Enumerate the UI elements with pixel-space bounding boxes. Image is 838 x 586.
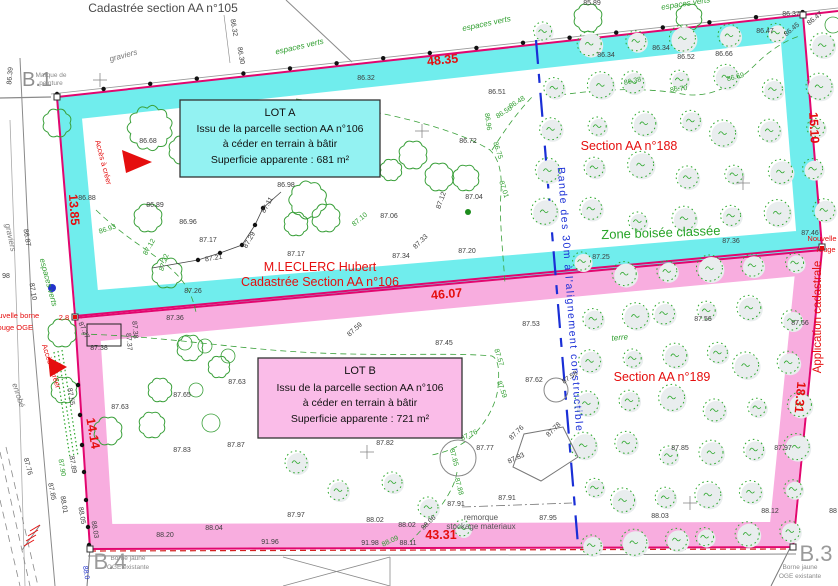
tree-shadow: [613, 490, 637, 514]
elevation-label: 87.63: [228, 379, 246, 386]
access-arrow-icon-1: [122, 150, 152, 173]
shrub-icon: [189, 383, 203, 397]
survey-dot: [253, 223, 257, 227]
elevation-label: 87.89: [68, 455, 78, 474]
boundary-corner-marker: [800, 12, 806, 18]
elevation-label: 86.32: [229, 18, 239, 37]
tree-shadow: [585, 311, 605, 331]
map-label: stockage materiaux: [446, 522, 515, 531]
map-label: Section AA n°188: [581, 139, 678, 153]
survey-dot: [101, 87, 105, 91]
elevation-label: 88.03: [651, 513, 669, 520]
hatch-tick-4: [30, 525, 40, 531]
survey-dot: [196, 258, 200, 262]
tree-shadow: [779, 353, 801, 375]
elevation-label: 87.36: [166, 315, 184, 322]
tree-shadow: [812, 35, 836, 59]
deciduous-tree-icon: [453, 165, 479, 191]
elevation-label: 87.91: [498, 495, 516, 502]
elevation-label: 87.55: [66, 387, 76, 406]
elevation-label: 87.37: [124, 333, 133, 351]
new-red-boundary-marker: [73, 315, 77, 319]
tree-shadow: [737, 524, 761, 548]
contour-elevation-label: 87.12: [142, 238, 157, 257]
elevation-label: 87.33: [412, 233, 429, 250]
elevation-label: 87.17: [199, 237, 217, 244]
elevation-label: 87.12: [435, 191, 448, 210]
elevation-label: 88: [829, 508, 837, 515]
map-label: Cadastrée section AA n°105: [88, 1, 238, 15]
red-hatch-mark: [22, 525, 40, 550]
elevation-label: 87.21: [204, 254, 223, 264]
contour-elevation-label: 86.70: [670, 85, 688, 94]
elevation-label: 85.89: [583, 0, 601, 7]
deciduous-tree-icon: [48, 319, 76, 347]
tree-shadow: [723, 207, 743, 227]
contour-elevation-label: 87.22: [159, 253, 171, 272]
contour-elevation-label: 87.90: [57, 458, 67, 477]
deciduous-tree-icon: [148, 378, 171, 401]
tree-shadow: [621, 392, 641, 412]
tree-shadow: [586, 159, 606, 179]
boundary-corner-marker: [87, 546, 93, 552]
elevation-label: 86.47: [806, 10, 824, 27]
tree-shadow: [815, 201, 837, 223]
elevation-label: 86.52: [677, 54, 695, 61]
lot-a-line-1: Issu de la parcelle section AA n°106: [196, 123, 363, 135]
lot-b-title: LOT B: [344, 365, 376, 377]
contour-elevation-label: 86.56: [495, 105, 514, 120]
tree-shadow: [705, 401, 727, 423]
tree-shadow: [287, 453, 309, 475]
elevation-label: 87.83: [507, 452, 526, 466]
map-label: 2.8: [59, 313, 69, 322]
elevation-label: 86.34: [597, 52, 615, 59]
tree-shadow: [741, 483, 763, 505]
shrub-icon: [202, 414, 220, 432]
tree-shadow: [739, 297, 763, 321]
elevation-label: 87.97: [774, 445, 792, 452]
elevation-label: 86.30: [236, 46, 246, 65]
elevation-label: 86.66: [715, 51, 733, 58]
elevation-label: 87.56: [694, 316, 712, 323]
map-label: Bande des 30m à l'alignement constructib…: [555, 167, 586, 433]
cadastral-survey-plan: Cadastrée section AA n°105B.1Marque depe…: [0, 0, 838, 586]
survey-dot: [614, 30, 618, 34]
elevation-label: 91.98: [361, 540, 379, 547]
contour-elevation-label: 86.75: [491, 141, 503, 160]
elevation-label: 87.36: [722, 238, 740, 245]
tree-shadow: [667, 530, 689, 552]
elevation-label: 87.65: [173, 392, 191, 399]
shrub-icon: [178, 336, 192, 350]
map-label: Borne jaune: [110, 555, 145, 562]
elevation-label: 87.97: [287, 512, 305, 519]
map-label: Nouvelle borne: [0, 311, 39, 320]
map-label: Application cadastrale: [812, 261, 824, 374]
map-label: Section AA n°189: [614, 370, 711, 384]
deciduous-tree-icon: [139, 412, 165, 438]
deciduous-tree-icon: [380, 159, 401, 180]
elevation-label: 87.91: [447, 501, 465, 508]
survey-dot: [195, 76, 199, 80]
elevation-label: 87.38: [90, 345, 108, 352]
lot-a-label-box: LOT A Issu de la parcelle section AA n°1…: [180, 100, 380, 177]
elevation-label: 86.98: [277, 182, 295, 189]
green-point-marker: [465, 209, 471, 215]
map-label: OGE existante: [107, 564, 150, 571]
elevation-label: 87.76: [22, 457, 33, 476]
tree-shadow: [764, 81, 784, 101]
lot-b-label-box: LOT B Issu de la parcelle section AA n°1…: [258, 358, 462, 438]
map-label: peinture: [39, 80, 63, 87]
tree-shadow: [581, 352, 603, 374]
map-label: remorque: [464, 513, 499, 522]
contour-elevation-label: 87.76: [460, 429, 479, 443]
elevation-label: 87.95: [539, 515, 557, 522]
map-label: OGE existante: [779, 573, 822, 580]
survey-dot: [707, 20, 711, 24]
survey-dot: [521, 41, 525, 45]
tree-shadow: [770, 161, 794, 185]
path-dashed-sw2: [6, 447, 38, 586]
map-label: rouge: [816, 245, 835, 254]
elevation-label: 87.77: [476, 445, 494, 452]
map-label: espaces verts: [661, 0, 711, 12]
deciduous-tree-icon: [208, 356, 229, 377]
dimension-label: 18.31: [792, 381, 809, 413]
map-label: enrobé: [10, 382, 26, 409]
elevation-label: 88.01: [59, 495, 69, 514]
elevation-label: 88.11: [400, 540, 417, 547]
elevation-label: 87.29: [242, 231, 257, 250]
shrub-icon: [825, 17, 838, 33]
survey-dot: [80, 443, 84, 447]
map-label: terre: [611, 332, 629, 342]
elevation-label: 88.02: [366, 517, 384, 524]
tree-shadow: [760, 121, 782, 143]
tree-shadow: [678, 168, 700, 190]
elevation-label: 86.32: [357, 75, 375, 82]
survey-dot: [567, 36, 571, 40]
survey-dot: [288, 66, 292, 70]
plan-canvas: Cadastrée section AA n°105B.1Marque depe…: [0, 0, 838, 586]
elevation-label: 87.85: [671, 445, 689, 452]
elevation-label: 86.89: [146, 202, 164, 209]
deciduous-tree-icon: [312, 204, 340, 232]
map-label: Marque de: [35, 72, 66, 79]
tree-shadow: [582, 199, 604, 221]
map-label: M.LECLERC Hubert: [264, 260, 377, 274]
road-edge-top: [286, 0, 352, 62]
lot-b-area: Superficie apparente : 721 m²: [291, 413, 430, 425]
survey-dot: [78, 413, 82, 417]
map-label: graviers: [3, 223, 18, 253]
contour-elevation-label: 87.88: [453, 477, 464, 496]
deciduous-tree-icon: [574, 4, 602, 32]
tree-shadow: [701, 442, 725, 466]
tree-shadow: [709, 344, 729, 364]
road-edge-bottom: [88, 554, 796, 556]
deciduous-tree-icon: [399, 141, 427, 169]
road-edge-west: [20, 58, 55, 586]
elevation-label: 87.04: [465, 194, 483, 201]
survey-dot: [82, 470, 86, 474]
dashdot-line: [462, 503, 572, 507]
lot-b-line-2: à céder en terrain à bâtir: [303, 397, 418, 409]
elevation-label: 86.51: [488, 89, 506, 96]
elevation-label: 87.26: [184, 288, 202, 295]
road-edge-left: [0, 97, 51, 98]
elevation-label: 86.47: [756, 28, 774, 35]
tree-shadow: [583, 537, 603, 557]
survey-dot: [76, 383, 80, 387]
elevation-label: 87.78: [545, 421, 562, 438]
map-label: Cadastrée Section AA n°106: [241, 275, 399, 289]
elevation-label: 87.62: [525, 377, 543, 384]
tree-shadow: [634, 113, 658, 137]
lot-a-line-2: à céder en terrain à bâtir: [223, 138, 338, 150]
survey-dot: [241, 71, 245, 75]
hatch-tick-2: [26, 535, 36, 541]
survey-dot: [474, 46, 478, 50]
contour-elevation-label: 86.96: [483, 113, 492, 131]
elevation-label: 86.37: [782, 11, 800, 18]
contour-elevation-label: 87.01: [497, 180, 509, 199]
tree-shadow: [628, 33, 648, 53]
elevation-label: 87.63: [111, 404, 129, 411]
tree-shadow: [665, 345, 689, 369]
path-dashed-sw3: [0, 500, 20, 586]
tree-shadow: [746, 441, 766, 461]
map-label: Borne jaune: [782, 564, 817, 571]
contour-elevation-label: 87.85: [448, 448, 459, 467]
contour-elevation-label: 86.93: [98, 224, 117, 236]
survey-dot: [334, 61, 338, 65]
tree-shadow: [805, 161, 825, 181]
survey-dot: [148, 82, 152, 86]
map-label: rouge OGE: [0, 323, 33, 332]
deciduous-tree-icon: [425, 163, 453, 191]
elevation-label: 87.66: [791, 320, 809, 327]
elevation-label: 87.10: [28, 282, 38, 301]
elevation-label: 87.46: [801, 230, 819, 237]
tree-shadow: [682, 112, 702, 132]
map-label: espaces verts: [38, 257, 59, 307]
elevation-label: 88.20: [156, 532, 174, 539]
elevation-label: 87.20: [458, 248, 476, 255]
map-label: 88.0: [81, 565, 90, 580]
elevation-label: 88.12: [761, 508, 779, 515]
elevation-label: 86.88: [78, 195, 96, 202]
deciduous-tree-icon: [284, 212, 307, 235]
boundary-corner-marker: [790, 544, 796, 550]
tree-shadow: [782, 523, 802, 543]
tree-shadow: [330, 482, 350, 502]
contour-elevation-label: 87.59: [495, 380, 508, 399]
tree-shadow: [720, 26, 742, 48]
survey-dot: [381, 56, 385, 60]
elevation-label: 87.34: [392, 253, 410, 260]
dimension-label: 46.07: [430, 286, 462, 303]
tree-shadow: [617, 433, 639, 455]
elevation-label: 86.34: [652, 45, 670, 52]
tree-shadow: [659, 263, 679, 283]
tree-shadow: [743, 256, 765, 278]
tree-shadow: [655, 304, 677, 326]
map-label: Accès à créer: [93, 139, 114, 186]
elevation-label: 86.96: [179, 219, 197, 226]
elevation-label: 86.39: [6, 67, 15, 85]
map-label: espaces verts: [274, 37, 324, 57]
map-label: B.3: [799, 541, 832, 566]
survey-dot: [661, 25, 665, 29]
elevation-label: 87.53: [522, 321, 540, 328]
elevation-label: 87.11: [260, 196, 275, 214]
elevation-label: 87.45: [435, 340, 453, 347]
elevation-label: 86.87: [22, 228, 32, 247]
elevation-label: 88.02: [398, 522, 416, 529]
shrub-icon: [198, 339, 212, 353]
elevation-label: 87.82: [376, 440, 394, 447]
elevation-label: 88.05: [77, 506, 87, 525]
survey-dot: [84, 498, 88, 502]
elevation-label: 86.72: [459, 138, 477, 145]
contour-elevation-label: 87.10: [351, 211, 369, 228]
elevation-label: 87.59: [346, 321, 364, 338]
tree-shadow: [546, 80, 566, 100]
road-edge-west2: [10, 120, 25, 586]
dimension-label: 15.10: [806, 112, 822, 144]
boundary-corner-marker: [54, 94, 60, 100]
survey-dot: [754, 15, 758, 19]
survey-dot: [86, 525, 90, 529]
lot-b-line-1: Issu de la parcelle section AA n°106: [276, 382, 443, 394]
lot-a-area: Superficie apparente : 681 m²: [211, 154, 350, 166]
elevation-label: 91.96: [261, 539, 279, 546]
map-label: graviers: [108, 48, 138, 64]
elevation-label: 87.17: [287, 251, 305, 258]
tree-shadow: [384, 474, 404, 494]
lot-a-title: LOT A: [265, 107, 297, 119]
tree-shadow: [542, 120, 564, 142]
map-label: espaces verts: [461, 14, 511, 33]
elevation-label: 87.83: [173, 447, 191, 454]
elevation-label: 88.04: [205, 525, 223, 532]
elevation-label: 98: [2, 273, 10, 280]
tree-shadow: [614, 264, 638, 288]
elevation-label: 87.76: [508, 424, 525, 441]
elevation-label: 87.06: [380, 213, 398, 220]
tree-shadow: [657, 489, 677, 509]
elevation-label: 86.68: [139, 138, 157, 145]
elevation-label: 87.25: [592, 254, 610, 261]
elevation-label: 87.87: [227, 442, 245, 449]
